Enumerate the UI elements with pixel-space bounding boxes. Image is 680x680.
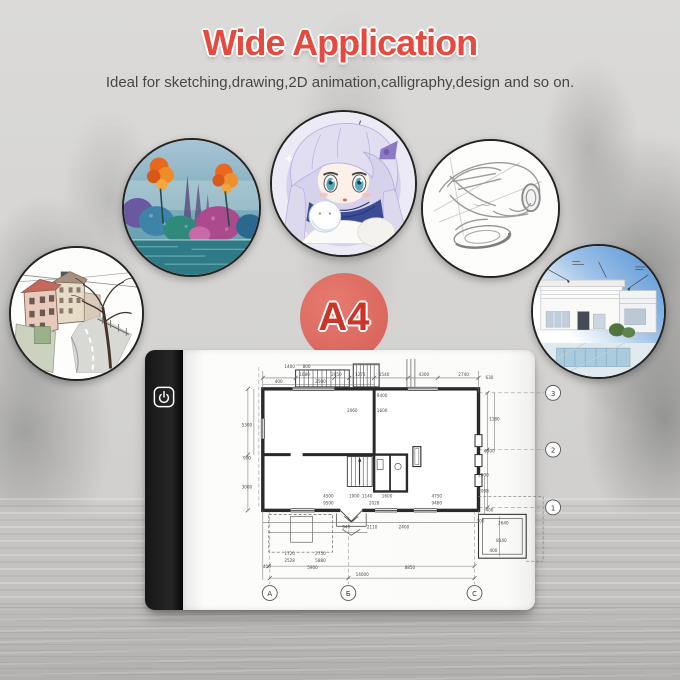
svg-text:14000: 14000 <box>356 572 370 577</box>
svg-text:800: 800 <box>303 364 311 369</box>
power-icon <box>153 386 175 408</box>
axis-col-c: C <box>472 590 477 598</box>
svg-text:6300: 6300 <box>484 449 495 454</box>
svg-text:2008: 2008 <box>478 488 489 493</box>
svg-text:1600: 1600 <box>382 493 393 498</box>
svg-text:630: 630 <box>485 375 493 380</box>
svg-text:4500: 4500 <box>323 493 334 498</box>
svg-text:8850: 8850 <box>405 565 416 570</box>
svg-text:400: 400 <box>485 507 493 512</box>
background-wood-table <box>0 608 680 680</box>
axis-row-3: 3 <box>551 390 555 398</box>
page-subtitle: Ideal for sketching,drawing,2D animation… <box>0 74 680 91</box>
svg-text:5900: 5900 <box>307 565 318 570</box>
svg-text:5300: 5300 <box>242 423 253 428</box>
svg-text:2640: 2640 <box>498 520 509 525</box>
svg-text:2050: 2050 <box>331 372 342 377</box>
svg-text:1540: 1540 <box>379 372 390 377</box>
landscape-painting-art <box>124 140 259 275</box>
svg-text:3000: 3000 <box>242 484 253 489</box>
svg-text:400: 400 <box>263 564 271 569</box>
svg-text:4300: 4300 <box>419 372 430 377</box>
svg-text:2110: 2110 <box>367 524 378 529</box>
svg-text:2500: 2500 <box>315 379 326 384</box>
svg-text:1180: 1180 <box>489 417 500 422</box>
svg-text:2740: 2740 <box>458 372 469 377</box>
svg-text:1400: 1400 <box>284 364 295 369</box>
anime-illustration-art <box>272 112 415 255</box>
svg-text:1720: 1720 <box>284 551 295 556</box>
svg-text:400: 400 <box>489 548 497 553</box>
svg-text:2528: 2528 <box>284 558 295 563</box>
svg-text:1600: 1600 <box>377 408 388 413</box>
page-title: Wide Application <box>0 22 680 64</box>
axis-col-a: А <box>267 590 272 598</box>
svg-text:1273: 1273 <box>355 372 366 377</box>
svg-text:400: 400 <box>275 379 283 384</box>
svg-text:4750: 4750 <box>431 493 442 498</box>
svg-text:2060: 2060 <box>347 408 358 413</box>
axis-row-1: 1 <box>551 504 555 512</box>
svg-text:9400: 9400 <box>377 393 388 398</box>
svg-text:5880: 5880 <box>315 558 326 563</box>
street-sketch-art <box>11 248 142 379</box>
car-concept-sketch-art <box>423 141 558 276</box>
svg-text:940: 940 <box>342 524 350 529</box>
axis-row-2: 2 <box>551 447 555 455</box>
svg-text:2400: 2400 <box>399 524 410 529</box>
gallery-circle-street-sketch <box>9 246 144 381</box>
pad-control-strip <box>145 350 183 610</box>
floor-plan-drawing: 3 2 1 А Б C 1680205012731540430027402500… <box>233 357 561 604</box>
svg-text:9480: 9480 <box>431 500 442 505</box>
svg-text:2750: 2750 <box>315 551 326 556</box>
svg-text:1140: 1140 <box>362 493 373 498</box>
promo-banner: Wide Application Ideal for sketching,dra… <box>0 0 680 680</box>
blueprint-floor-plan: 3 2 1 А Б C 1680205012731540430027402500… <box>233 357 561 604</box>
svg-text:9500: 9500 <box>323 500 334 505</box>
svg-text:300: 300 <box>477 518 485 523</box>
led-light-pad: 3 2 1 А Б C 1680205012731540430027402500… <box>145 350 535 610</box>
svg-text:2000: 2000 <box>478 473 489 478</box>
gallery-circle-landscape-painting <box>122 138 261 277</box>
svg-text:1000: 1000 <box>349 493 360 498</box>
gallery-circle-anime-illustration <box>270 110 417 257</box>
pad-light-surface: 3 2 1 А Б C 1680205012731540430027402500… <box>183 350 535 610</box>
svg-text:900: 900 <box>243 456 251 461</box>
svg-text:1680: 1680 <box>299 372 310 377</box>
axis-col-b: Б <box>346 590 351 598</box>
svg-text:8140: 8140 <box>496 538 507 543</box>
a4-size-badge: A4 <box>300 273 388 361</box>
svg-text:2028: 2028 <box>369 500 380 505</box>
gallery-circle-car-concept-sketch <box>421 139 560 278</box>
a4-size-label: A4 <box>318 295 369 340</box>
